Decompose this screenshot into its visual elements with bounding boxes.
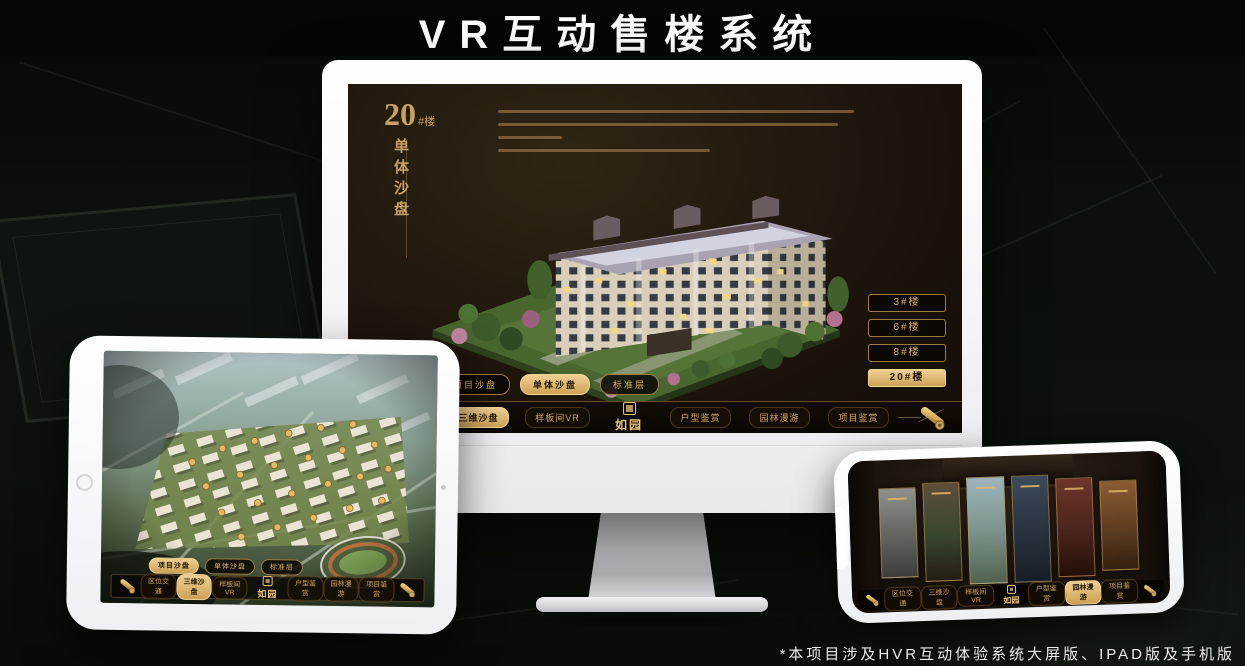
monitor-shadow — [502, 612, 802, 628]
nav-item-showroom-vr[interactable]: 样板间VR — [957, 585, 994, 608]
carousel-card[interactable] — [922, 481, 963, 581]
brand-logo-text: 如园 — [247, 587, 287, 601]
seal-icon — [1006, 584, 1015, 593]
nav-item-location[interactable]: 区位交通 — [884, 586, 921, 611]
scene-pillar — [1139, 450, 1170, 581]
scroll-icon[interactable] — [1138, 582, 1163, 598]
nav-item-project-gallery[interactable]: 项目鉴赏 — [819, 407, 898, 428]
monitor-stand-base — [536, 597, 768, 612]
phone-device: 区位交通 三维沙盘 样板间VR 如园 户型鉴赏 园林漫游 项目鉴赏 — [833, 440, 1185, 624]
tablet-device: 项目沙盘 单体沙盘 标准层 区位交通 三维沙盘 样板间VR 如园 — [66, 335, 460, 634]
bg-map-road — [1043, 28, 1217, 275]
nav-item-project-gallery[interactable]: 项目鉴赏 — [1101, 579, 1138, 604]
brand-logo-text: 如园 — [597, 416, 661, 433]
footnote-text: *本项目涉及HVR互动体验系统大屏版、IPAD版及手机版 — [780, 643, 1235, 664]
page: VR互动售楼系统 20#楼 单体沙盘 — [0, 0, 1245, 666]
nav-item-floorplans[interactable]: 户型鉴赏 — [661, 407, 740, 428]
nav-item-showroom-vr[interactable]: 样板间VR — [518, 407, 597, 428]
building-button-8[interactable]: 8#楼 — [868, 344, 946, 362]
unit-number-suffix: #楼 — [418, 116, 435, 128]
tablet-screen: 项目沙盘 单体沙盘 标准层 区位交通 三维沙盘 样板间VR 如园 — [100, 351, 437, 608]
tab-standard-floor[interactable]: 标准层 — [600, 374, 659, 395]
tablet-tab-standard-floor[interactable]: 标准层 — [261, 559, 303, 576]
nav-item-garden-tour[interactable]: 园林漫游 — [1064, 580, 1101, 605]
brand-logo[interactable]: 如园 — [247, 576, 287, 601]
brand-logo[interactable]: 如园 — [597, 402, 661, 433]
scroll-icon[interactable] — [860, 592, 885, 608]
nav-item-3d-sandbox[interactable]: 三维沙盘 — [921, 585, 958, 610]
building-button-3[interactable]: 3#楼 — [868, 294, 946, 312]
seal-icon — [263, 576, 273, 586]
carousel-card[interactable] — [878, 487, 918, 578]
phone-notch — [835, 507, 848, 569]
carousel-card[interactable] — [1055, 477, 1096, 577]
nav-item-floorplans[interactable]: 户型鉴赏 — [287, 575, 323, 601]
tablet-home-button[interactable] — [76, 474, 93, 491]
carousel-card[interactable] — [1099, 480, 1139, 571]
tab-unit-sandbox[interactable]: 单体沙盘 — [520, 374, 590, 395]
nav-item-garden-tour[interactable]: 园林漫游 — [740, 407, 819, 428]
carousel-card[interactable] — [966, 476, 1007, 584]
tablet-camera — [441, 485, 446, 490]
phone-screen: 区位交通 三维沙盘 样板间VR 如园 户型鉴赏 园林漫游 项目鉴赏 — [847, 450, 1170, 613]
tablet-tab-project-sandbox[interactable]: 项目沙盘 — [149, 557, 199, 574]
scroll-icon[interactable] — [394, 581, 420, 599]
unit-number: 20 — [384, 96, 416, 132]
monitor-stand-neck — [588, 513, 716, 601]
nav-item-showroom-vr[interactable]: 样板间VR — [212, 576, 248, 599]
panel-carousel[interactable] — [878, 472, 1140, 587]
scene-pillar — [847, 461, 878, 592]
tablet-tab-unit-sandbox[interactable]: 单体沙盘 — [205, 558, 255, 575]
monitor-tabs: 项目沙盘 单体沙盘 标准层 — [440, 374, 659, 395]
nav-item-location[interactable]: 区位交通 — [140, 573, 176, 599]
building-button-20[interactable]: 20#楼 — [868, 369, 946, 387]
nav-item-floorplans[interactable]: 户型鉴赏 — [1028, 581, 1065, 606]
scroll-icon[interactable] — [114, 577, 140, 595]
nav-item-project-gallery[interactable]: 项目鉴赏 — [359, 576, 395, 602]
nav-item-garden-tour[interactable]: 园林漫游 — [323, 576, 359, 602]
scroll-icon[interactable] — [898, 402, 950, 434]
carousel-card[interactable] — [1011, 474, 1052, 582]
nav-item-3d-sandbox[interactable]: 三维沙盘 — [176, 574, 212, 600]
building-selector: 3#楼 6#楼 8#楼 20#楼 — [868, 294, 946, 387]
brand-logo[interactable]: 如园 — [994, 584, 1029, 606]
tablet-navbar: 区位交通 三维沙盘 样板间VR 如园 户型鉴赏 园林漫游 项目鉴赏 — [110, 574, 424, 602]
brand-logo-text: 如园 — [994, 594, 1028, 606]
building-button-6[interactable]: 6#楼 — [868, 319, 946, 337]
seal-icon — [623, 402, 636, 415]
building-model-image[interactable] — [403, 144, 873, 412]
page-title: VR互动售楼系统 — [0, 2, 1245, 60]
